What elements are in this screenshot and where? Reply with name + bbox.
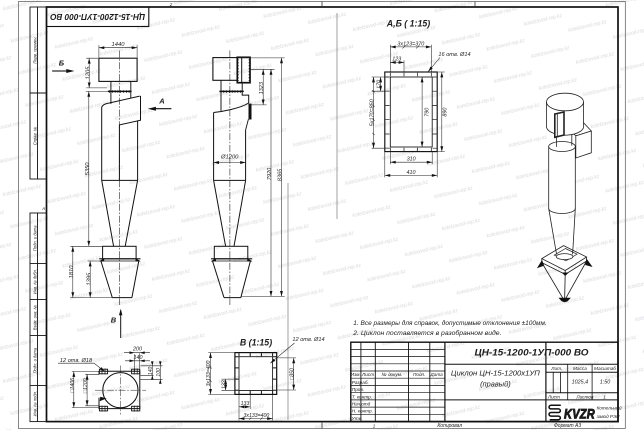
svg-text:12 отв. Ø14: 12 отв. Ø14 <box>292 337 324 343</box>
svg-text:Формат А3: Формат А3 <box>554 423 582 429</box>
svg-text:3х133=400: 3х133=400 <box>243 413 269 419</box>
svg-text:□1406: □1406 <box>70 378 76 393</box>
svg-text:Изм.: Изм. <box>351 372 361 377</box>
svg-text:□1200: □1200 <box>83 378 89 393</box>
svg-text:ЦН-15-1200-1УП-000 ВО: ЦН-15-1200-1УП-000 ВО <box>49 12 145 21</box>
svg-text:Перв. примен.: Перв. примен. <box>33 36 38 63</box>
svg-text:завод РЭП: завод РЭП <box>596 414 621 419</box>
svg-text:16 отв. Ø14: 16 отв. Ø14 <box>438 52 470 58</box>
svg-text:Подп.: Подп. <box>413 372 425 377</box>
svg-text:Инв. № подл.: Инв. № подл. <box>33 391 38 416</box>
svg-text:1025,4: 1025,4 <box>572 380 589 386</box>
svg-text:2: 2 <box>169 2 173 7</box>
svg-text:Подп. и дата: Подп. и дата <box>33 225 38 251</box>
svg-text:133: 133 <box>222 380 228 389</box>
svg-text:Взам. инв. №: Взам. инв. № <box>33 304 38 330</box>
svg-text:Подп. и дата: Подп. и дата <box>33 347 38 373</box>
svg-text:А: А <box>158 97 164 106</box>
svg-text:Инв. № дубл.: Инв. № дубл. <box>33 269 38 294</box>
svg-text:1395: 1395 <box>86 272 92 286</box>
svg-text:123: 123 <box>392 56 401 62</box>
svg-text:12 отв. Ø18: 12 отв. Ø18 <box>60 358 93 364</box>
svg-text:890: 890 <box>443 108 449 117</box>
svg-text:Копировал: Копировал <box>437 423 462 429</box>
svg-text:В: В <box>111 316 117 325</box>
svg-text:ЦН-15-1200-1УП-000 ВО: ЦН-15-1200-1УП-000 ВО <box>475 348 590 358</box>
svg-text:410: 410 <box>407 170 416 176</box>
svg-text:1810: 1810 <box>69 265 75 279</box>
svg-text:1. Все размеры для справок, до: 1. Все размеры для справок, допустимые о… <box>353 320 546 327</box>
svg-text:Лист: Лист <box>547 394 560 399</box>
svg-text:Б: Б <box>59 59 65 68</box>
svg-text:1: 1 <box>373 423 376 428</box>
svg-text:KVZR: KVZR <box>564 407 595 422</box>
svg-text:Справ. №: Справ. № <box>33 126 38 145</box>
svg-text:200: 200 <box>132 347 142 353</box>
svg-text:170: 170 <box>377 80 383 89</box>
svg-text:1323: 1323 <box>259 81 265 94</box>
svg-text:1440: 1440 <box>112 42 126 48</box>
svg-text:Пров.: Пров. <box>352 387 364 392</box>
svg-text:5х170=850: 5х170=850 <box>369 99 375 126</box>
svg-text:100: 100 <box>156 368 162 377</box>
svg-text:(правый): (правый) <box>480 379 511 388</box>
svg-text:А: А <box>41 206 45 211</box>
svg-text:А,Б ( 1:15): А,Б ( 1:15) <box>386 19 430 29</box>
svg-text:8365: 8365 <box>278 168 284 181</box>
svg-text:Котельный: Котельный <box>597 405 622 411</box>
svg-text:□350: □350 <box>290 368 296 380</box>
svg-text:№ докум.: № докум. <box>382 372 403 377</box>
svg-text:Лист: Лист <box>361 372 374 377</box>
svg-text:2. Циклон поставляется в разоб: 2. Циклон поставляется в разобранном вид… <box>352 330 501 337</box>
svg-text:В (1:15): В (1:15) <box>240 337 272 347</box>
svg-text:140: 140 <box>134 355 143 361</box>
svg-text:Масса: Масса <box>573 366 587 371</box>
svg-text:3х133=400: 3х133=400 <box>206 360 212 386</box>
svg-text:Разраб.: Разраб. <box>352 380 369 385</box>
svg-text:Листов: Листов <box>575 394 594 399</box>
svg-text:790: 790 <box>424 108 430 117</box>
svg-text:Т. контр.: Т. контр. <box>352 394 372 399</box>
svg-text:Масштаб: Масштаб <box>594 366 616 371</box>
svg-text:5350: 5350 <box>85 162 91 176</box>
svg-text:Ø1200: Ø1200 <box>220 155 239 161</box>
svg-text:7920: 7920 <box>267 167 273 180</box>
svg-text:1: 1 <box>603 394 606 399</box>
svg-text:310: 310 <box>407 157 416 163</box>
svg-text:Дата: Дата <box>429 372 443 377</box>
svg-text:Нач.отд: Нач.отд <box>352 402 371 407</box>
svg-text:1:50: 1:50 <box>600 380 611 386</box>
svg-text:Н. контр.: Н. контр. <box>352 409 373 414</box>
svg-text:Утв.: Утв. <box>352 416 363 421</box>
svg-text:3х123=370: 3х123=370 <box>397 41 424 47</box>
svg-text:Лит.: Лит. <box>550 366 562 371</box>
svg-text:Циклон ЦН-15-1200х1УП: Циклон ЦН-15-1200х1УП <box>451 368 541 377</box>
svg-text:133: 133 <box>241 401 250 407</box>
svg-text:140: 140 <box>148 367 154 376</box>
svg-text:1205: 1205 <box>85 66 91 80</box>
